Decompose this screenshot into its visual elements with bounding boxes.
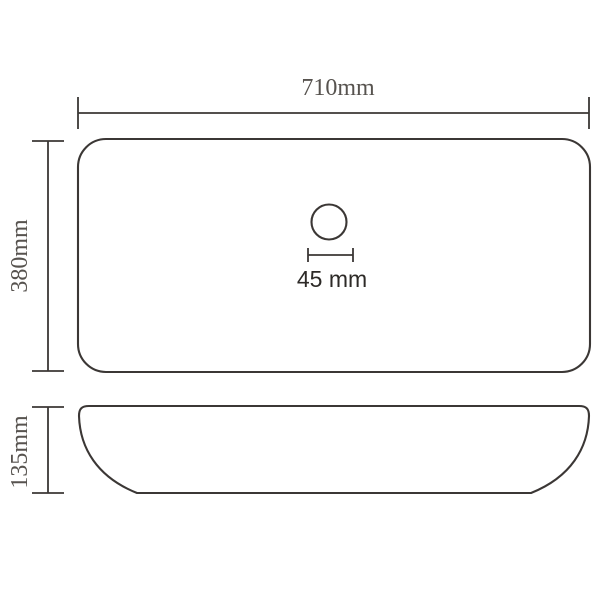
sink-dimension-diagram: 710mm 380mm 45 mm 135mm	[0, 0, 600, 600]
drain-dimension: 45 mm	[297, 248, 367, 292]
height-dimension-label: 135mm	[7, 415, 33, 489]
dimension-drawing: 710mm 380mm 45 mm 135mm	[0, 0, 600, 600]
width-dimension-label: 710mm	[301, 75, 375, 101]
width-dimension: 710mm	[78, 75, 589, 129]
basin-top-view: 45 mm	[78, 139, 590, 372]
basin-side-view	[79, 406, 589, 493]
depth-dimension: 380mm	[7, 141, 64, 371]
height-dimension: 135mm	[7, 407, 64, 493]
depth-dimension-label: 380mm	[7, 219, 33, 293]
drain-hole	[312, 205, 347, 240]
basin-side-outline	[79, 406, 589, 493]
drain-dimension-label: 45 mm	[297, 266, 367, 292]
